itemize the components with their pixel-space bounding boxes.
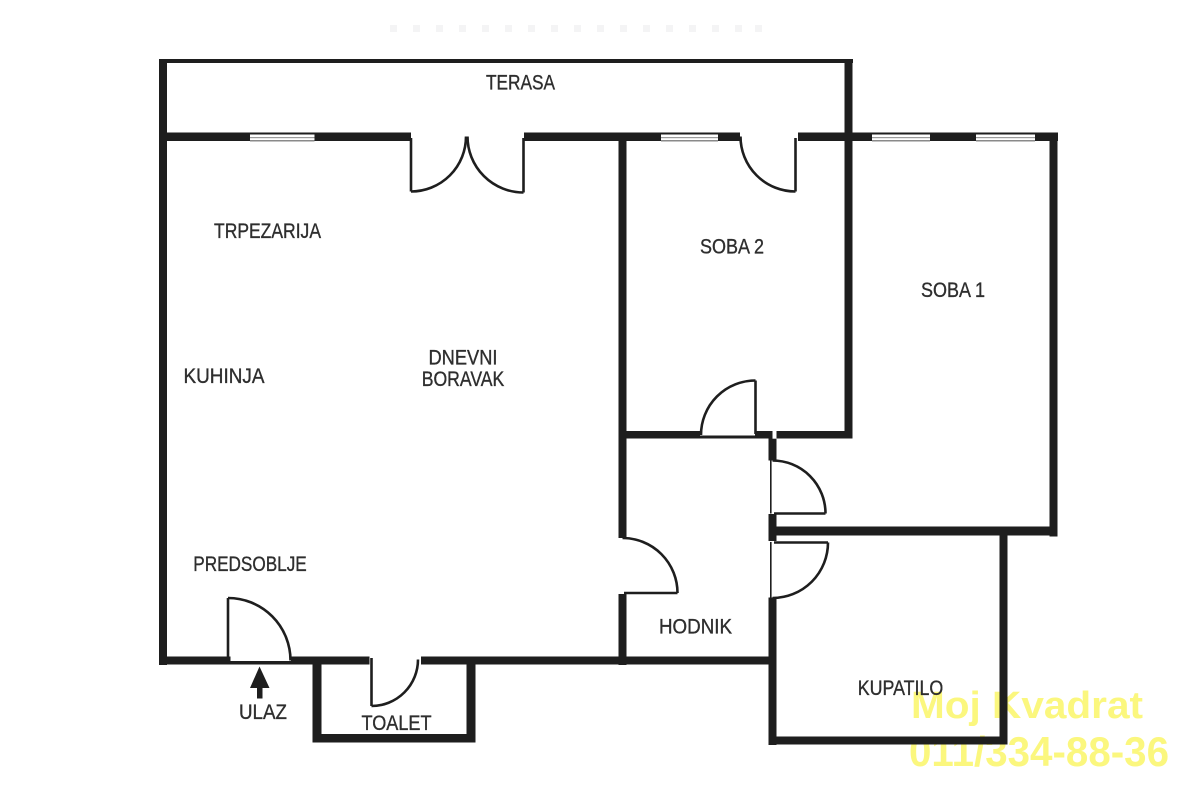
svg-text:PREDSOBLJE: PREDSOBLJE xyxy=(193,553,307,576)
svg-text:SOBA 2: SOBA 2 xyxy=(700,236,764,259)
svg-text:BORAVAK: BORAVAK xyxy=(422,368,505,391)
svg-text:TRPEZARIJA: TRPEZARIJA xyxy=(214,220,321,243)
svg-text:TOALET: TOALET xyxy=(362,712,432,735)
svg-text:DNEVNI: DNEVNI xyxy=(429,347,498,370)
svg-text:Moj Kvadrat: Moj Kvadrat xyxy=(911,685,1143,727)
svg-text:ULAZ: ULAZ xyxy=(239,701,287,724)
svg-text:KUPATILO: KUPATILO xyxy=(858,677,944,700)
svg-text:011/334-88-36: 011/334-88-36 xyxy=(909,728,1169,775)
svg-text:KUHINJA: KUHINJA xyxy=(184,365,265,388)
svg-text:HODNIK: HODNIK xyxy=(659,616,732,639)
svg-text:TERASA: TERASA xyxy=(486,72,555,95)
svg-text:SOBA 1: SOBA 1 xyxy=(921,279,985,302)
